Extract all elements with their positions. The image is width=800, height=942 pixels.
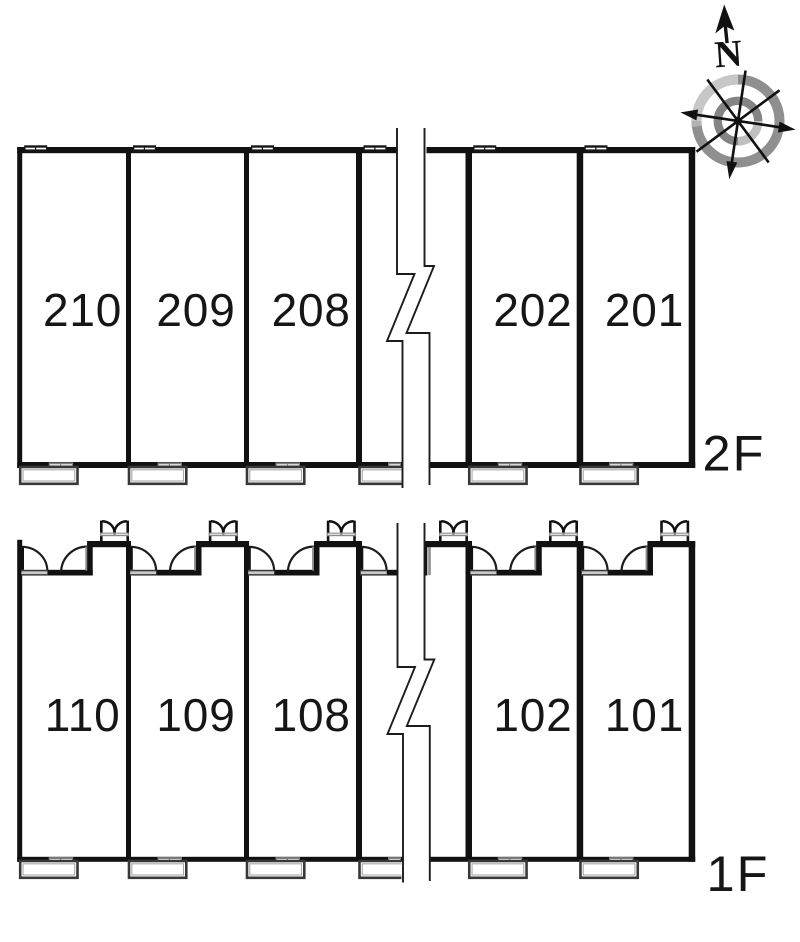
svg-text:1F: 1F [707,845,770,902]
svg-text:210: 210 [43,284,122,336]
svg-text:209: 209 [156,284,235,336]
svg-text:108: 108 [272,689,351,741]
svg-text:202: 202 [493,284,572,336]
svg-text:2F: 2F [703,425,766,482]
svg-text:208: 208 [272,284,351,336]
svg-text:101: 101 [605,689,684,741]
svg-text:102: 102 [493,689,572,741]
svg-text:109: 109 [156,689,235,741]
svg-text:N: N [713,33,743,77]
svg-text:110: 110 [45,689,121,741]
svg-text:201: 201 [605,284,684,336]
